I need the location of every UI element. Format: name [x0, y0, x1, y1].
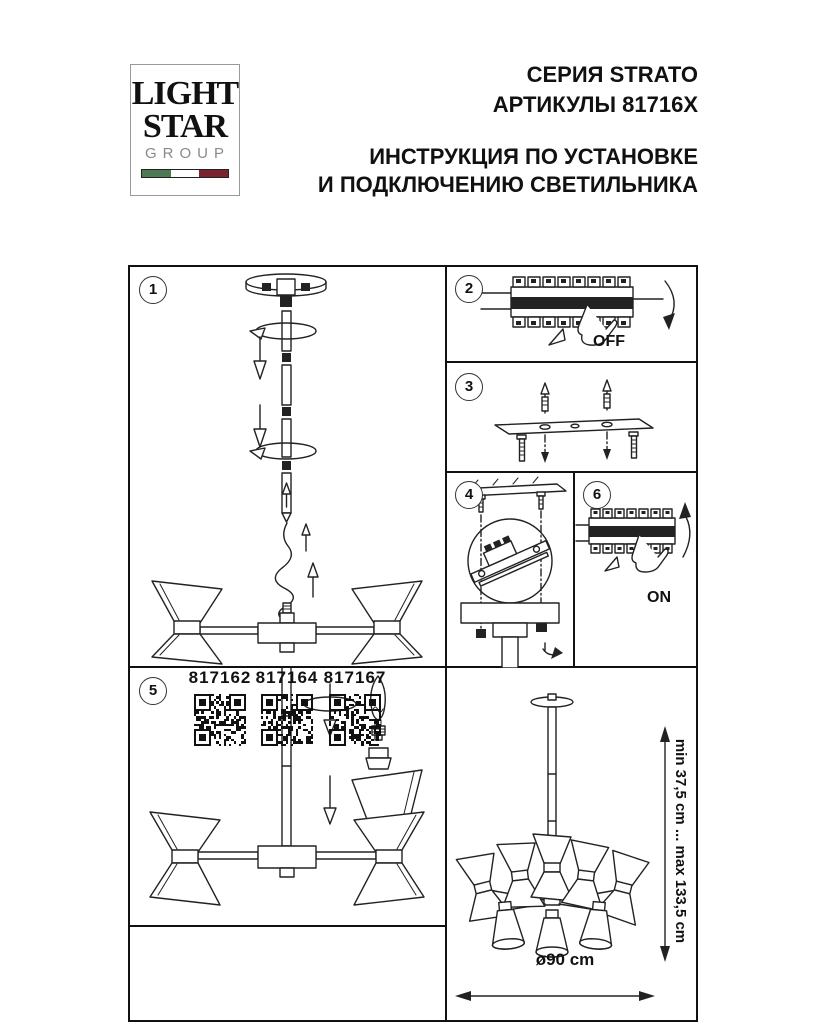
shade [531, 834, 573, 901]
up-arrow-icon [308, 563, 318, 597]
article-column: 817164 [252, 668, 322, 746]
step1-rod-assembly-diagram [130, 267, 445, 666]
circuit-breaker [481, 277, 663, 327]
curved-down-arrow-icon [663, 281, 675, 330]
diameter-dimension-label: ø90 cm [495, 950, 635, 970]
step2-number-badge: 2 [455, 275, 483, 303]
instruction-sheet: LIGHT STAR GROUP СЕРИЯ STRATO АРТИКУЛЫ 8… [0, 0, 826, 1024]
instruction-line1: ИНСТРУКЦИЯ ПО УСТАНОВКЕ [318, 143, 698, 171]
flag-green [142, 170, 171, 177]
series-title: СЕРИЯ STRATO АРТИКУЛЫ 81716X [493, 60, 698, 120]
right-shade [352, 581, 422, 664]
left-shade [152, 581, 222, 664]
step1-panel: 1 [130, 267, 445, 666]
flag-white [171, 170, 200, 177]
article-number: 817167 [320, 668, 390, 688]
height-dimension-label: min 37,5 cm ... max 133,5 cm [672, 727, 689, 955]
step3-number-badge: 3 [455, 373, 483, 401]
chandelier-frame [198, 846, 376, 877]
article-column: 817162 [185, 668, 255, 746]
instruction-line2: И ПОДКЛЮЧЕНИЮ СВЕТИЛЬНИКА [318, 171, 698, 199]
lamp-socket [366, 748, 391, 769]
step4-number-badge: 4 [455, 481, 483, 509]
rotate-icon [543, 643, 563, 659]
article-column: 817167 [320, 668, 390, 746]
step5-number-badge: 5 [139, 677, 167, 705]
series-name: СЕРИЯ STRATO [493, 60, 698, 90]
nut [476, 629, 486, 638]
qr-code [194, 694, 246, 746]
articles-panel [130, 927, 445, 1020]
qr-code [329, 694, 381, 746]
qr-code [261, 694, 313, 746]
italian-flag-stripe [141, 169, 229, 178]
article-number: 817164 [252, 668, 322, 688]
up-arrow-icon [302, 524, 310, 551]
step4-panel: 4 [447, 473, 573, 668]
down-arrow-icon [254, 337, 266, 379]
circuit-breaker [576, 509, 675, 553]
canopy-cup [461, 603, 559, 668]
step2-breaker-off-diagram [447, 267, 696, 361]
logo-light: LIGHT [131, 77, 239, 110]
lightstar-logo: LIGHT STAR GROUP [130, 64, 240, 196]
step3-bracket-diagram [447, 363, 696, 471]
hanging-screw [537, 492, 545, 509]
step6-on-label: ON [647, 589, 671, 607]
step6-panel: 6 ON [575, 473, 696, 668]
mounting-screw [629, 432, 638, 458]
shade [495, 840, 545, 912]
step1-number-badge: 1 [139, 276, 167, 304]
down-arrow-icon [324, 776, 336, 824]
step2-panel: 2 OFF [447, 267, 696, 361]
step3-panel: 3 [447, 363, 696, 471]
article-number: 817162 [185, 668, 255, 688]
down-arrow-icon [254, 405, 266, 447]
curved-up-arrow-icon [679, 502, 691, 557]
chandelier-drawing [454, 694, 651, 957]
shade [561, 840, 611, 912]
article-code: АРТИКУЛЫ 81716X [493, 90, 698, 120]
step6-number-badge: 6 [583, 481, 611, 509]
step2-off-label: OFF [593, 333, 625, 351]
flag-red [199, 170, 228, 177]
wall-anchor [603, 380, 611, 410]
height-dimension-line [660, 726, 670, 962]
nut [536, 623, 547, 632]
logo-star: STAR [131, 110, 239, 143]
wall-anchor [541, 383, 549, 413]
instruction-title: ИНСТРУКЦИЯ ПО УСТАНОВКЕ И ПОДКЛЮЧЕНИЮ СВ… [318, 143, 698, 199]
logo-group: GROUP [131, 145, 239, 162]
chandelier-frame [200, 623, 374, 652]
ceiling-canopy [246, 274, 326, 307]
mounting-screw [517, 435, 526, 461]
diameter-dimension-line [455, 991, 655, 1001]
